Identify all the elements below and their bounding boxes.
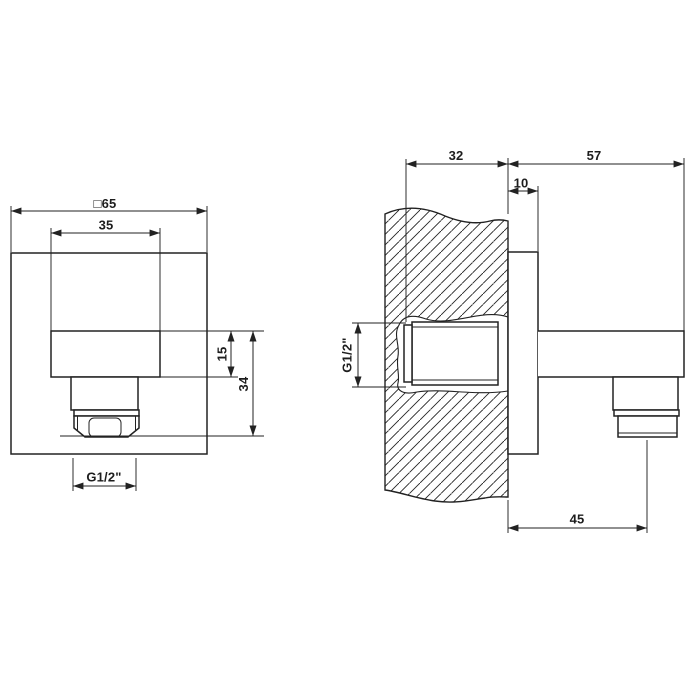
dim-label-overall-height: 34	[236, 376, 251, 391]
dim-label-plate-thickness: 10	[514, 176, 529, 191]
mounting-plate-side	[508, 252, 538, 454]
dim-label-body-height: 15	[215, 347, 230, 362]
side-view: 32 57 10 G1/2" 45	[340, 148, 685, 533]
dim-label-body-width: 35	[99, 218, 114, 233]
technical-drawing: □65 35 15 34 G1/2"	[0, 0, 700, 700]
thread-ring-side	[614, 410, 679, 416]
dim-label-recess-depth: 32	[449, 148, 464, 163]
hose-nut-front	[74, 416, 139, 437]
outlet-neck-side	[613, 377, 678, 410]
dim-label-plate: □65	[94, 196, 117, 211]
inlet-connector	[404, 325, 412, 382]
thread-ring-front	[74, 410, 139, 416]
technical-drawing-page: □65 35 15 34 G1/2"	[0, 0, 700, 700]
dim-label-projection: 57	[587, 148, 602, 163]
dim-label-outlet-thread: G1/2"	[86, 470, 121, 485]
concealed-fitting-body	[412, 322, 498, 385]
dim-label-outlet-distance: 45	[570, 512, 585, 527]
dim-label-inlet-thread: G1/2"	[340, 337, 355, 372]
body-side	[538, 331, 684, 377]
body-front	[51, 331, 160, 377]
outlet-neck-front	[71, 377, 138, 410]
outlet-thread-side	[618, 416, 677, 437]
front-view: □65 35 15 34 G1/2"	[11, 196, 264, 491]
